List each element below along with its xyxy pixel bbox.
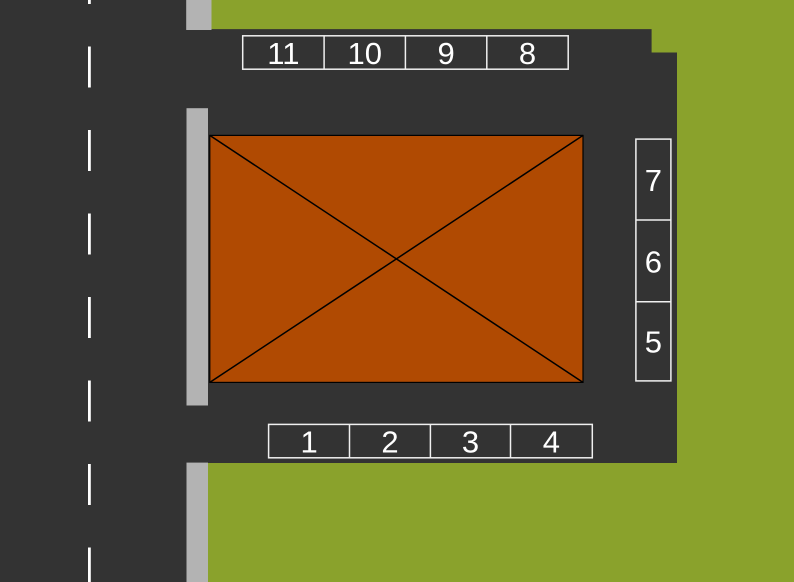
svg-text:8: 8 bbox=[519, 36, 536, 71]
svg-text:9: 9 bbox=[437, 36, 454, 71]
svg-text:7: 7 bbox=[645, 163, 662, 198]
svg-text:1: 1 bbox=[300, 425, 317, 460]
svg-text:5: 5 bbox=[645, 325, 662, 360]
svg-text:4: 4 bbox=[543, 425, 560, 460]
svg-text:11: 11 bbox=[267, 36, 299, 71]
svg-text:2: 2 bbox=[381, 425, 398, 460]
svg-text:10: 10 bbox=[348, 36, 382, 71]
svg-text:6: 6 bbox=[645, 244, 662, 279]
svg-text:3: 3 bbox=[462, 425, 479, 460]
